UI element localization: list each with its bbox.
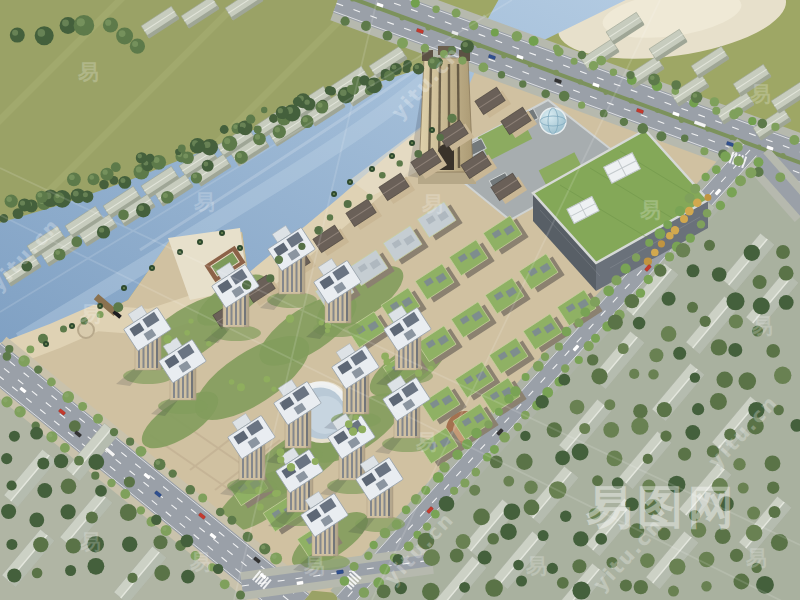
aerial-masterplan-rendering: 易图网 yitu.cnyitu.cnyitu.cnyitu.cnyitu.cn易… bbox=[0, 0, 800, 600]
vehicle bbox=[296, 581, 303, 586]
glass-atrium-dome bbox=[540, 108, 566, 134]
rendering-scene bbox=[0, 0, 800, 600]
plaza-circle-motif bbox=[78, 322, 94, 338]
vehicle bbox=[336, 570, 343, 575]
